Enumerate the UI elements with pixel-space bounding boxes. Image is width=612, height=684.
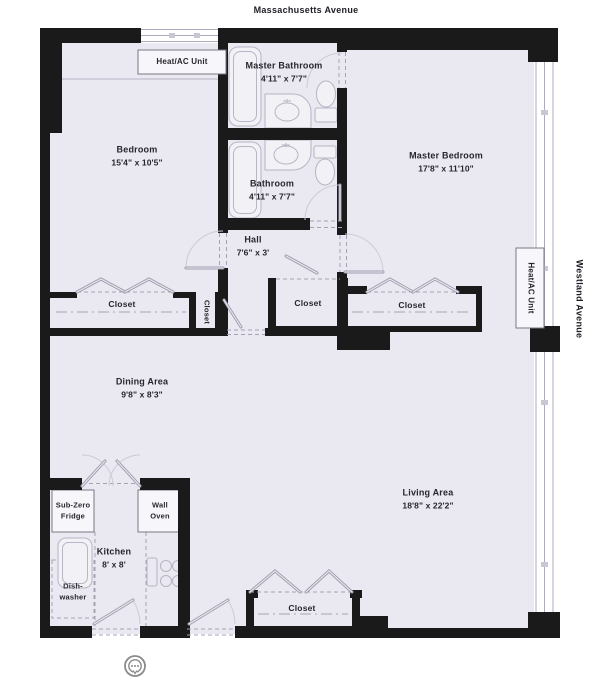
fridge-label: Sub-ZeroFridge [56, 501, 91, 522]
wall-oven-label: WallOven [150, 501, 170, 522]
heat-ac-unit-label-right: Heat/AC Unit [524, 262, 537, 313]
closet-label-hall-small: Closet [200, 300, 213, 324]
room-label-master-bedroom: Master Bedroom17'8" x 11'10" [409, 150, 483, 175]
room-label-hall: Hall7'6" x 3' [237, 234, 270, 259]
room-label-master-bathroom: Master Bathroom4'11" x 7'7" [245, 60, 322, 85]
room-label-living-area: Living Area18'8" x 22'2" [402, 487, 453, 512]
master-toilet-icon [317, 81, 336, 107]
room-label-kitchen: Kitchen8' x 8' [97, 546, 131, 571]
closet-label-bedroom: Closet [108, 298, 135, 311]
dishwasher-label: Dish-washer [59, 582, 86, 603]
room-label-bedroom: Bedroom15'4" x 10'5" [111, 144, 162, 169]
toilet-icon [314, 146, 336, 158]
room-label-bathroom: Bathroom4'11" x 7'7" [249, 178, 295, 203]
closet-label-hall: Closet [294, 297, 321, 310]
street-label-massachusetts-avenue: Massachusetts Avenue [254, 4, 359, 17]
closet-label-living: Closet [288, 602, 315, 615]
street-label-westland-avenue: Westland Avenue [573, 260, 586, 339]
floor-plan-page: Massachusetts Avenue Westland Avenue Bed… [0, 0, 612, 684]
heat-ac-unit-label-top: Heat/AC Unit [156, 56, 207, 69]
room-label-dining-area: Dining Area9'8" x 8'3" [116, 376, 168, 401]
chat-bubble-map-icon[interactable] [125, 656, 145, 676]
closet-label-master: Closet [398, 299, 425, 312]
floor-plan-drawing [0, 0, 612, 684]
master-vanity-icon [265, 94, 311, 128]
